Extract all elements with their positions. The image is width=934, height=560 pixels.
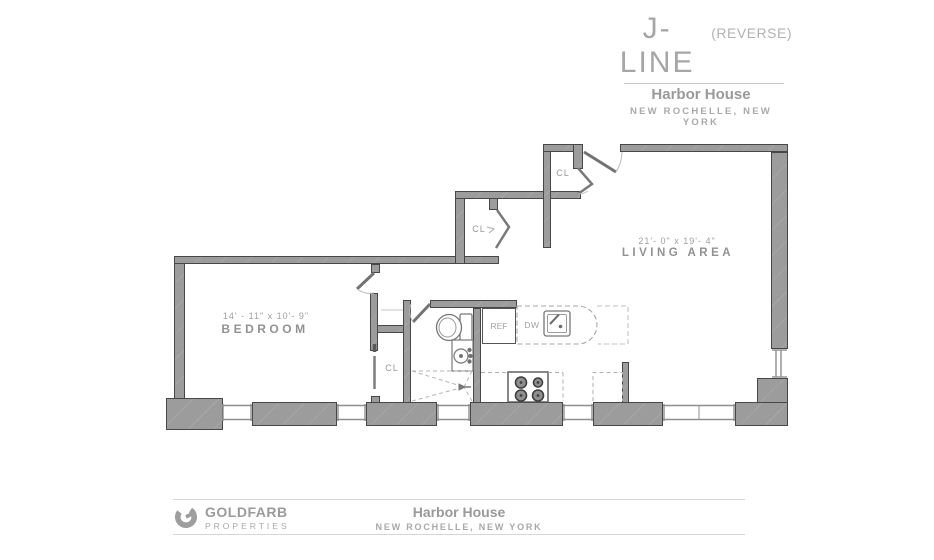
plan-name-row: J-LINE (REVERSE) — [610, 12, 792, 80]
footer-company: GOLDFARB PROPERTIES — [205, 504, 290, 531]
wall-entry-jamb — [573, 144, 583, 169]
window — [772, 350, 787, 377]
title-building: Harbor House — [610, 86, 792, 103]
bathroom-sink — [452, 340, 473, 371]
plan-symbols-layer — [0, 0, 934, 560]
wall-bedroom-door-jamb — [371, 264, 380, 273]
wall-closet-lower-jamb — [489, 198, 498, 210]
wall-kitchen-stub — [622, 362, 629, 403]
refrigerator: REF — [482, 308, 516, 344]
kitchen-sink — [544, 311, 570, 336]
company-name: GOLDFARB — [205, 504, 290, 520]
closet-label-bedroom: CL — [385, 363, 399, 373]
wall-bottom-seg — [735, 402, 788, 426]
title-location: NEW ROCHELLE, NEW YORK — [610, 106, 792, 128]
wall-bottom-seg — [593, 402, 663, 426]
wall-bottom-seg — [470, 402, 563, 426]
wall-corner-bottom-left — [166, 398, 223, 430]
footer: GOLDFARB PROPERTIES Harbor House NEW ROC… — [173, 499, 745, 535]
footer-center: Harbor House NEW ROCHELLE, NEW YORK — [376, 504, 543, 532]
wall-bath-west — [403, 300, 411, 403]
footer-location: NEW ROCHELLE, NEW YORK — [376, 522, 543, 532]
wall-right — [771, 152, 788, 349]
closet-door-lower — [487, 210, 509, 248]
wall-left — [174, 256, 185, 403]
shower-head-icon — [459, 384, 471, 390]
wall-bottom-seg — [252, 402, 337, 426]
wall-bath-east — [473, 308, 481, 403]
entry-door — [584, 152, 622, 172]
wall-step-vertical — [455, 191, 465, 264]
wall-top-bedroom — [174, 256, 499, 264]
bedroom-label: BEDROOM — [221, 322, 308, 336]
wall-bath-top — [430, 300, 517, 308]
closet-label-lower: CL — [472, 224, 486, 234]
floorplan-page: J-LINE (REVERSE) Harbor House NEW ROCHEL… — [0, 0, 934, 560]
wall-bottom-seg — [366, 402, 437, 426]
wall-top-living — [620, 144, 788, 152]
wall-bedroom-closet-stub — [371, 396, 380, 403]
dishwasher-label: DW — [524, 320, 539, 330]
bathroom-door — [410, 304, 430, 322]
goldfarb-logo-icon — [174, 505, 198, 529]
title-block: J-LINE (REVERSE) Harbor House NEW ROCHEL… — [610, 12, 792, 128]
toilet — [437, 314, 473, 341]
wall-closet-right — [543, 144, 551, 248]
base-cabinets — [481, 373, 623, 402]
wall-step-horizontal — [455, 191, 581, 199]
living-area-label: LIVING AREA — [622, 247, 734, 259]
closet-label-upper: CL — [556, 168, 570, 178]
bedroom-dimensions: 14' - 11" x 10'- 9" — [223, 311, 309, 321]
stove — [508, 372, 548, 402]
living-area-dimensions: 21'- 0" x 19'- 4" — [638, 236, 715, 246]
shower — [412, 371, 472, 401]
title-rule — [624, 83, 784, 84]
refrigerator-label: REF — [491, 321, 508, 331]
bedroom-door — [357, 273, 374, 293]
footer-building: Harbor House — [376, 504, 543, 520]
wall-bedroom-east — [370, 293, 378, 351]
plan-variant: (REVERSE) — [711, 25, 792, 41]
company-subtitle: PROPERTIES — [205, 521, 290, 531]
plan-name: J-LINE — [610, 12, 704, 80]
